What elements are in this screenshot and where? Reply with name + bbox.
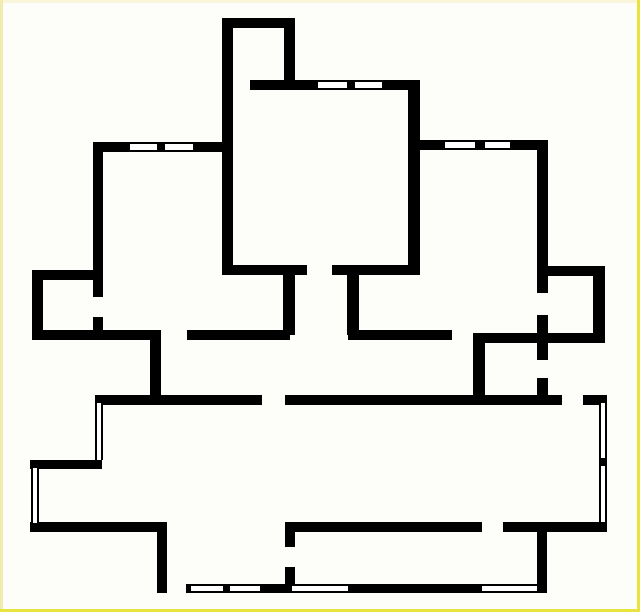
bottom-mid-wall-a: [285, 522, 482, 532]
bottom-wall-solid-a: [260, 584, 292, 593]
bottom-mid-wall-b: [503, 522, 607, 532]
step2-wall: [30, 460, 102, 469]
left-window-2: [31, 468, 39, 523]
mid-vert-upper: [537, 315, 548, 360]
right-room-right-wall: [593, 266, 605, 343]
left-window-1: [95, 403, 103, 460]
mid-post-left: [283, 275, 295, 335]
central-right-wall: [408, 80, 420, 275]
bottom-wall-solid-b: [348, 584, 482, 593]
left-top-window-1: [130, 142, 157, 152]
right-top-wall-a: [410, 140, 445, 150]
upper-window-2: [355, 80, 382, 90]
left-top-wall-b: [193, 142, 233, 152]
bottom-left-vert-wall: [157, 532, 167, 593]
right-top-wall-mullion: [475, 140, 485, 150]
bottom-window-3: [292, 584, 348, 593]
bottom-wall-mullion: [223, 584, 230, 593]
upper-wall-mullion: [347, 80, 355, 90]
lower-wall-b: [187, 330, 290, 340]
strip-right-wall: [537, 532, 547, 593]
left-top-wall-mullion: [157, 142, 165, 152]
mid-wall-right: [332, 265, 416, 275]
step-wall-vert: [150, 330, 161, 400]
step3-wall: [30, 522, 167, 532]
strip-post-upper: [285, 522, 295, 547]
upper-wall-left: [250, 80, 318, 90]
hall-wall-mid: [285, 395, 562, 405]
upper-window-1: [318, 80, 347, 90]
lower-wall-c: [348, 330, 452, 340]
right-top-window-1: [445, 140, 475, 150]
lower-wall-a: [32, 330, 160, 340]
bottom-window-4: [482, 584, 537, 593]
bottom-window-1: [191, 584, 223, 593]
right-window-2: [599, 466, 607, 522]
mid-post-right: [347, 275, 359, 335]
right-top-window-2: [485, 140, 510, 150]
left-top-window-2: [165, 142, 193, 152]
right-window-1: [599, 403, 607, 458]
bottom-window-2: [230, 584, 260, 593]
right-window-mullion: [599, 458, 607, 466]
wc-left-wall: [473, 333, 485, 403]
floor-plan-canvas: [0, 0, 640, 612]
mid-wall-left: [223, 265, 307, 275]
hall-wall-left: [95, 395, 262, 405]
floor-plan-layer: [0, 0, 640, 612]
